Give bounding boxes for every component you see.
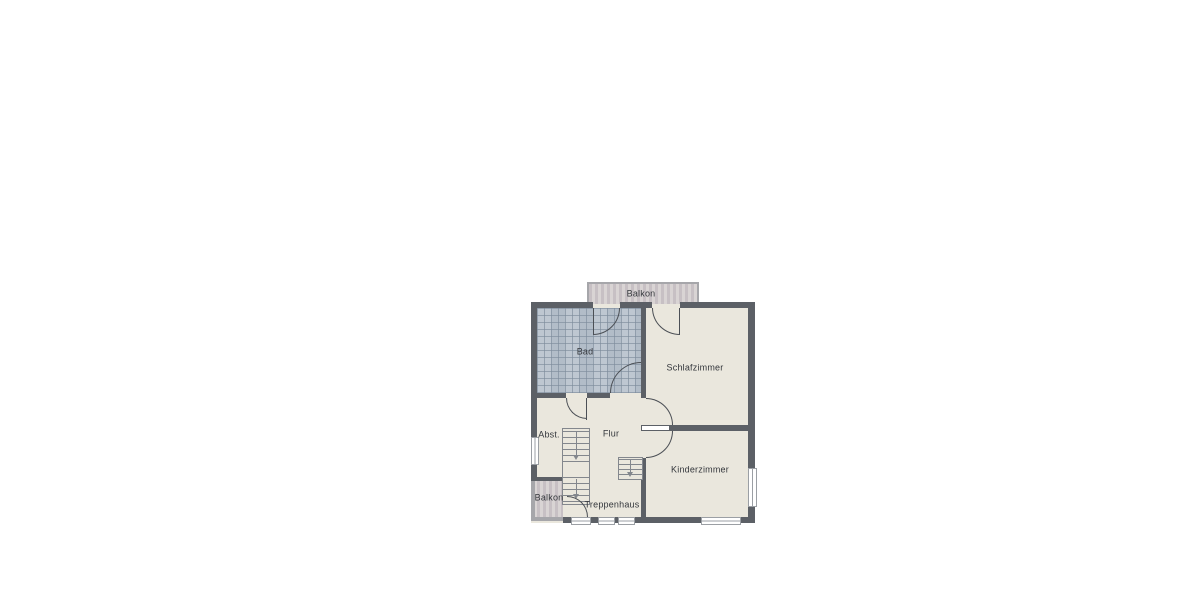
window-bottom-2	[598, 517, 615, 525]
door-leaf-balcony-bad	[593, 308, 595, 335]
wall-bottom-seg5	[739, 517, 755, 523]
window-right-kinderzimmer	[748, 468, 757, 507]
wall-left-upper	[531, 302, 537, 437]
room-label-treppenhaus: Treppenhaus	[585, 501, 640, 510]
floor-plan-canvas: Balkon Bad Schlafzimmer Abst. Flur Kinde…	[0, 0, 1200, 600]
stair-arrow-lower	[576, 479, 577, 495]
window-bottom-3	[618, 517, 635, 525]
room-label-balkon-bottom: Balkon	[535, 494, 564, 503]
room-label-balkon-top: Balkon	[627, 290, 656, 299]
room-label-schlafzimmer: Schlafzimmer	[667, 364, 724, 373]
floor-plan: Balkon Bad Schlafzimmer Abst. Flur Kinde…	[528, 280, 757, 526]
wall-top-middle-segment	[620, 302, 652, 308]
stair-small-arrowhead	[627, 472, 633, 477]
wall-bad-south-left	[531, 393, 566, 398]
window-bottom-kinderzimmer	[701, 517, 741, 525]
wall-bad-schlafzimmer	[641, 307, 646, 393]
wall-schlafzimmer-kinderzimmer	[667, 425, 748, 431]
balcony-bottom-bottom-wall	[531, 517, 563, 521]
room-label-kinderzimmer: Kinderzimmer	[671, 466, 729, 475]
stair-arrow-upper	[576, 431, 577, 456]
wall-top-right-segment	[680, 302, 755, 308]
door-leaf-balcony-schlafzimmer	[679, 308, 681, 335]
window-left-abst	[531, 437, 539, 465]
wall-bad-south-right	[587, 393, 610, 398]
room-label-flur: Flur	[603, 430, 619, 439]
door-leaf-flur-corridor	[586, 398, 588, 420]
wall-bottom-seg1	[563, 517, 571, 523]
wall-abst-balkon	[531, 477, 566, 481]
window-bottom-1	[571, 517, 591, 525]
wall-right-upper	[748, 302, 755, 468]
wall-bottom-seg4	[633, 517, 701, 523]
room-label-bad: Bad	[577, 348, 594, 357]
stair-arrowhead-upper	[573, 455, 579, 460]
wall-top-left-segment	[531, 302, 593, 308]
room-label-abst: Abst.	[538, 431, 560, 440]
staircase-small	[618, 457, 643, 480]
stair-small-arrow	[630, 459, 631, 473]
staircase-main	[562, 428, 590, 505]
